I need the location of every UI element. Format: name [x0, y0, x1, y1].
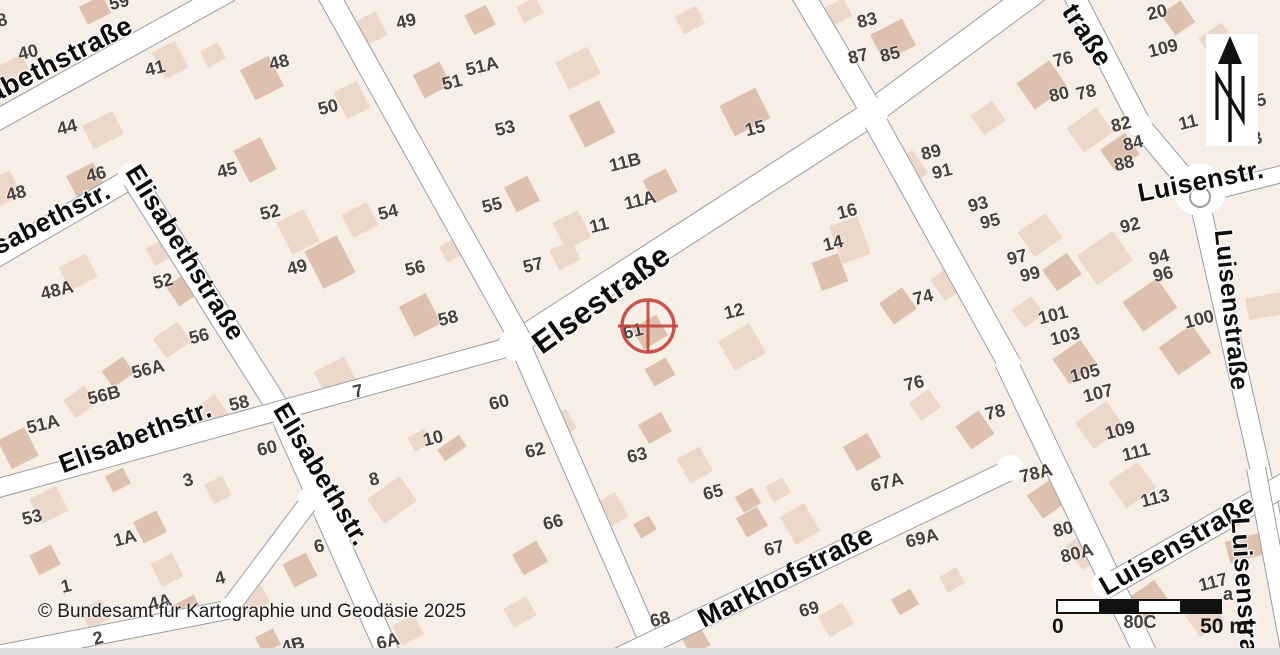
house-number: 48: [267, 51, 291, 73]
house-number: 78A: [1018, 460, 1054, 485]
house-number: 56: [187, 325, 211, 347]
scale-bar-segment: [1180, 601, 1221, 612]
house-number: a: [1223, 585, 1233, 603]
house-number: 4: [213, 568, 227, 588]
house-number: 54: [376, 201, 400, 223]
house-number: 95: [978, 210, 1002, 232]
house-number: 51: [440, 71, 464, 93]
house-number: 69A: [904, 525, 940, 550]
house-number: 49: [285, 256, 309, 278]
house-number: 80: [1051, 518, 1075, 540]
house-number: 48: [4, 182, 28, 204]
house-number: 7: [351, 381, 365, 401]
house-number: 48A: [39, 277, 75, 302]
house-number: 109: [1146, 36, 1180, 61]
house-number: 60: [255, 437, 279, 459]
house-number: 103: [1048, 324, 1082, 349]
house-number: 59: [107, 0, 131, 13]
house-number: 53: [493, 117, 517, 139]
house-number: 3: [181, 470, 195, 490]
house-number: 82: [1109, 113, 1133, 135]
scale-end-label: 50 m: [1200, 615, 1248, 639]
map-canvas[interactable]: ElisabethstraßeElisabethstr.Elisabethstr…: [0, 0, 1280, 655]
house-number: 99: [1018, 263, 1042, 285]
house-number: 12: [722, 300, 746, 322]
house-number: 68: [648, 608, 672, 630]
house-number: 89: [919, 141, 943, 163]
house-number: 62: [523, 439, 547, 461]
north-arrow: [1206, 34, 1258, 146]
house-number: 92: [1118, 214, 1142, 236]
house-number: 52: [151, 270, 175, 292]
house-number: 6: [312, 536, 326, 556]
target-marker[interactable]: [593, 271, 703, 381]
house-number: 57: [521, 254, 545, 276]
house-number: 58: [436, 307, 460, 329]
house-number: 55: [480, 194, 504, 216]
house-number: 85: [878, 43, 902, 65]
house-number: 80A: [1059, 540, 1095, 565]
house-number: 67: [762, 537, 786, 559]
house-number: 80: [1047, 83, 1071, 105]
house-number: 113: [1139, 486, 1172, 510]
house-number: 101: [1036, 303, 1070, 328]
house-number: 56A: [130, 356, 166, 381]
house-number: 45: [215, 159, 239, 181]
house-number: 66: [541, 511, 565, 533]
house-number: 91: [930, 160, 954, 182]
house-number: 49: [394, 10, 418, 32]
house-number: 52: [258, 201, 282, 223]
house-number: 14: [821, 232, 845, 254]
map-edge-strip: [0, 648, 1280, 655]
house-number: 56B: [86, 382, 122, 407]
scale-bar-segment: [1058, 601, 1099, 612]
house-number: 78: [1074, 81, 1098, 103]
house-number: 11B: [607, 149, 642, 174]
house-number: 69: [797, 598, 821, 620]
house-number: 67A: [869, 469, 905, 494]
scale-bar: 0 50 m: [1056, 599, 1222, 636]
house-number: 41: [143, 57, 167, 79]
north-arrowhead: [1218, 36, 1242, 64]
house-number: 2: [91, 628, 105, 648]
house-number: 1A: [112, 526, 139, 549]
house-number: 40: [16, 41, 40, 63]
house-number: 44: [55, 116, 79, 138]
house-number: 96: [1151, 263, 1175, 285]
scale-bar-segment: [1099, 601, 1140, 612]
house-number: 51A: [25, 411, 61, 436]
house-number: 60: [487, 391, 511, 413]
house-number: 65: [701, 481, 725, 503]
house-number: 51A: [464, 53, 500, 78]
house-number: 56: [403, 257, 427, 279]
house-number: 107: [1081, 381, 1115, 406]
house-number: 87: [846, 45, 870, 67]
house-number: 76: [1051, 48, 1075, 70]
house-number: 1: [59, 576, 73, 596]
house-number: 46: [84, 163, 108, 185]
house-number: 58: [227, 392, 251, 414]
house-number: 78: [983, 401, 1007, 423]
house-number: 74: [911, 286, 935, 308]
house-number: 111: [1120, 440, 1152, 464]
house-number: 10: [421, 427, 445, 449]
copyright-text: © Bundesamt für Kartographie und Geodäsi…: [38, 601, 466, 623]
house-number: 11A: [622, 187, 657, 212]
house-number: 105: [1068, 361, 1102, 386]
house-number: 8: [367, 469, 381, 489]
house-number: 20: [1145, 1, 1169, 23]
house-number: 83: [855, 9, 879, 31]
house-number: 53: [20, 506, 44, 528]
house-number: 84: [1121, 132, 1145, 154]
house-number: 11: [588, 214, 611, 236]
house-number: 100: [1182, 307, 1216, 332]
house-number: 50: [316, 96, 340, 118]
house-number: 88: [1112, 152, 1136, 174]
house-number: 109: [1103, 418, 1137, 443]
house-number: 15: [743, 117, 767, 139]
house-number: 16: [835, 200, 859, 222]
scale-bar-segment: [1139, 601, 1180, 612]
scale-start-label: 0: [1052, 615, 1064, 639]
house-number: 11: [1177, 111, 1200, 133]
house-number: 63: [625, 444, 649, 466]
house-number: 8: [0, 10, 9, 30]
scale-bar-segments: [1056, 599, 1222, 614]
house-number: 76: [902, 372, 926, 394]
